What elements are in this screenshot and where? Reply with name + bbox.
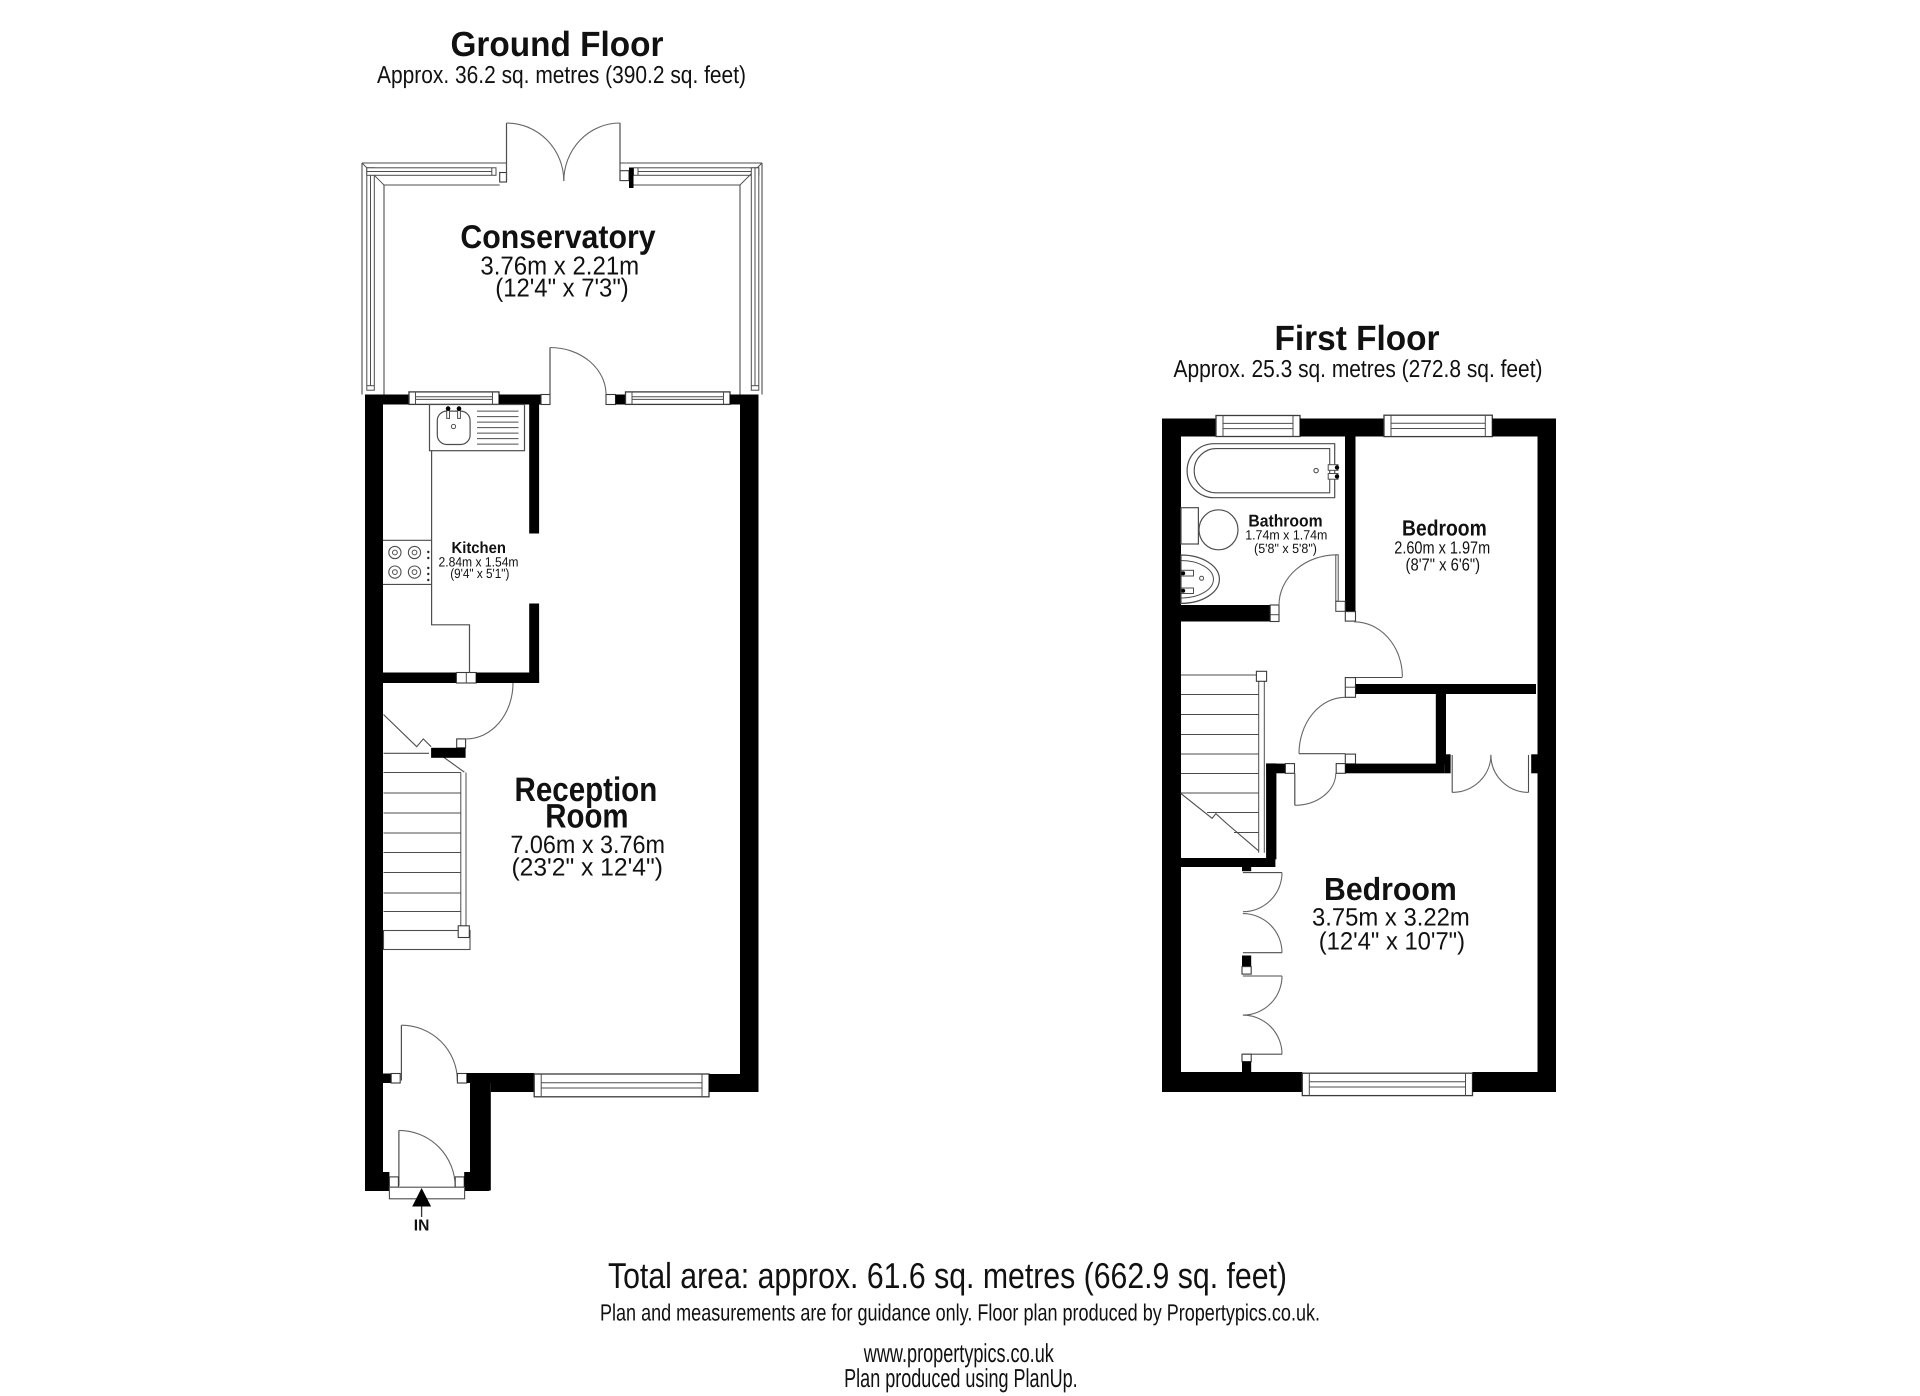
svg-text:Bedroom: Bedroom — [1324, 871, 1457, 907]
svg-text:(12'4" x 10'7"): (12'4" x 10'7") — [1319, 928, 1465, 956]
svg-text:Approx. 36.2 sq. metres (390.2: Approx. 36.2 sq. metres (390.2 sq. feet) — [377, 62, 746, 89]
svg-text:IN: IN — [414, 1218, 430, 1235]
svg-text:Total area: approx. 61.6 sq. m: Total area: approx. 61.6 sq. metres (662… — [608, 1255, 1287, 1296]
svg-text:Conservatory: Conservatory — [460, 218, 656, 255]
svg-text:(9'4" x 5'1"): (9'4" x 5'1") — [450, 566, 509, 581]
svg-text:First Floor: First Floor — [1275, 319, 1440, 358]
svg-text:(23'2" x 12'4"): (23'2" x 12'4") — [511, 854, 663, 882]
svg-text:Ground Floor: Ground Floor — [451, 25, 664, 64]
svg-text:(8'7" x 6'6"): (8'7" x 6'6") — [1406, 555, 1481, 575]
svg-text:Approx. 25.3 sq. metres (272.8: Approx. 25.3 sq. metres (272.8 sq. feet) — [1174, 356, 1543, 383]
svg-text:(5'8" x 5'8"): (5'8" x 5'8") — [1254, 541, 1317, 556]
svg-text:(12'4" x 7'3"): (12'4" x 7'3") — [495, 273, 629, 303]
svg-text:Plan and measurements are for: Plan and measurements are for guidance o… — [600, 1300, 1320, 1326]
svg-text:Room: Room — [545, 798, 628, 836]
svg-text:Plan produced using PlanUp.: Plan produced using PlanUp. — [844, 1363, 1078, 1393]
